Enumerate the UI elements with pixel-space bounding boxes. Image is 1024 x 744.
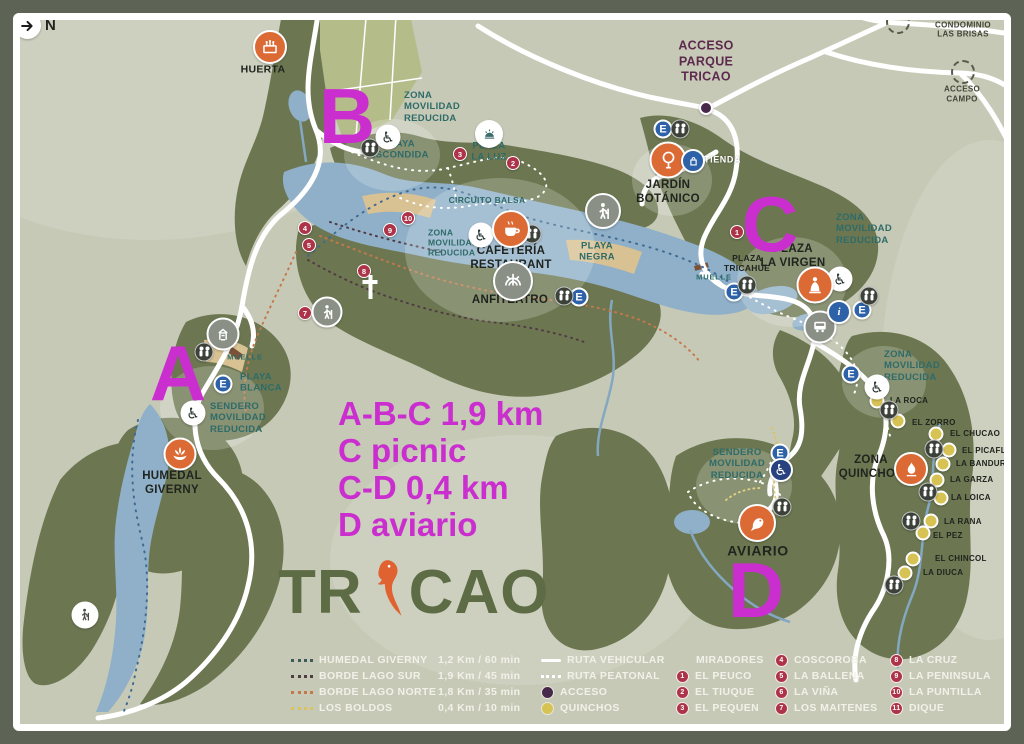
legend-routes: RUTA VEHICULAR RUTA PEATONAL ACCESO QUIN… xyxy=(541,652,665,716)
mirador-marker: 9 xyxy=(383,223,397,237)
restroom-icon xyxy=(925,440,944,459)
mirador-marker: 4 xyxy=(298,221,312,235)
plaza-la-luz-dome-icon xyxy=(475,120,503,148)
route-label: ACCESO xyxy=(560,686,607,698)
amphitheater-icon xyxy=(493,261,533,301)
mirador-number: 10 xyxy=(890,686,903,699)
trail-swatch xyxy=(291,675,313,678)
map-label: LA LOICA xyxy=(951,493,991,503)
route-label: RUTA VEHICULAR xyxy=(567,654,665,666)
quinchos-fire-icon xyxy=(894,452,928,486)
annotation-letter: A xyxy=(150,334,206,412)
mirador-number: 7 xyxy=(775,702,788,715)
map-label: LA DIUCA xyxy=(923,568,963,578)
pedestrian-route-swatch xyxy=(541,675,561,678)
map-label: ACCESO CONDOMINIO LAS BRISAS xyxy=(933,13,994,39)
campo-access-gate-icon xyxy=(951,60,975,84)
mirador-label: EL PEUCO xyxy=(695,670,752,682)
north-label: N xyxy=(45,17,56,34)
cafeteria-coffee-icon xyxy=(492,210,530,248)
giverny-lotus-icon xyxy=(164,438,197,471)
map-label: CIRCUITO BALSA xyxy=(449,195,526,205)
map-label: ACCESO CAMPO xyxy=(944,84,980,103)
mirador-label: LA VIÑA xyxy=(794,686,838,698)
trail-distance: 1,9 Km / 45 min xyxy=(438,670,520,682)
mirador-number: 5 xyxy=(775,670,788,683)
legend-mirador-row: 4 COSCOROBA xyxy=(775,652,878,668)
mirador-number: 4 xyxy=(775,654,788,667)
hiker-icon xyxy=(585,193,621,229)
mirador-number: 3 xyxy=(676,702,689,715)
annotation-note-line: D aviario xyxy=(338,506,543,543)
legend-mirador-row: 7 LOS MAITENES xyxy=(775,700,878,716)
restroom-icon xyxy=(738,276,757,295)
annotation-letter: D xyxy=(728,551,784,629)
mirador-marker: 10 xyxy=(401,211,415,225)
restroom-icon xyxy=(671,120,690,139)
parking-marker: E xyxy=(214,375,233,394)
park-access-dot xyxy=(699,101,713,115)
legend-trails: HUMEDAL GIVERNY 1,2 Km / 60 min BORDE LA… xyxy=(291,652,520,716)
mirador-label: LA PUNTILLA xyxy=(909,686,982,698)
aviary-bird-icon xyxy=(738,504,776,542)
access-swatch xyxy=(541,686,554,699)
mirador-number: 6 xyxy=(775,686,788,699)
mirador-label: EL PEQUEN xyxy=(695,702,759,714)
map-label: MUELLE xyxy=(696,273,732,282)
tienda-shop-icon xyxy=(681,149,705,173)
legend-miradores-col2: 4 COSCOROBA 5 LA BALLENA 6 LA VIÑA 7 LOS… xyxy=(775,652,878,716)
lookout-tower-icon xyxy=(207,318,240,351)
map-label: MUELLE xyxy=(227,353,263,362)
map-label: HUERTA xyxy=(241,64,286,77)
quincho-marker xyxy=(916,526,931,541)
mirador-label: COSCOROBA xyxy=(794,654,867,666)
mirador-label: LA BALLENA xyxy=(794,670,865,682)
trail-swatch xyxy=(291,691,313,694)
legend-trail-row: HUMEDAL GIVERNY 1,2 Km / 60 min xyxy=(291,652,520,668)
legend-route-row: QUINCHOS xyxy=(541,700,665,716)
wheelchair-icon: ♿ xyxy=(769,458,793,482)
map-label: ACCESO PARQUE TRICAO xyxy=(678,39,733,86)
legend-mirador-row: 5 LA BALLENA xyxy=(775,668,878,684)
quincho-swatch xyxy=(541,702,554,715)
annotation-notes: A-B-C 1,9 kmC picnicC-D 0,4 kmD aviario xyxy=(338,395,543,543)
vehicular-route-swatch xyxy=(541,659,561,662)
map-label: EL CHINCOL xyxy=(935,554,987,564)
map-label: PLAYA NEGRA xyxy=(579,241,615,264)
information-icon: i xyxy=(827,300,851,324)
legend-route-row: ACCESO xyxy=(541,684,665,700)
map-label: EL PICAFLOR xyxy=(962,446,1011,456)
map-label: SENDERO MOVILIDAD REDUCIDA xyxy=(210,401,266,435)
annotation-note-line: A-B-C 1,9 km xyxy=(338,395,543,432)
map-label: HUMEDAL GIVERNY xyxy=(142,470,202,498)
annotation-letter: B xyxy=(319,77,375,155)
restroom-icon xyxy=(902,512,921,531)
mirador-label: LOS MAITENES xyxy=(794,702,878,714)
map-label: LA RANA xyxy=(944,517,982,527)
map-label: EL PEZ xyxy=(933,531,963,541)
mirador-label: DIQUE xyxy=(909,702,944,714)
quincho-marker xyxy=(906,552,921,567)
annotation-letter: C xyxy=(742,185,798,263)
map-label: LA GARZA xyxy=(950,475,993,485)
legend-route-row: RUTA PEATONAL xyxy=(541,668,665,684)
legend-mirador-row: 8 LA CRUZ xyxy=(890,652,991,668)
quincho-marker xyxy=(942,443,957,458)
restroom-icon xyxy=(919,483,938,502)
legend-mirador-row: 6 LA VIÑA xyxy=(775,684,878,700)
legend-route-row: RUTA VEHICULAR xyxy=(541,652,665,668)
mirador-number: 9 xyxy=(890,670,903,683)
mirador-label: LA PENINSULA xyxy=(909,670,991,682)
north-arrow-icon xyxy=(14,13,41,39)
mirador-label: LA CRUZ xyxy=(909,654,958,666)
logo-text-right: CAO xyxy=(409,567,550,620)
legend-mirador-row: 11 DIQUE xyxy=(890,700,991,716)
trail-name: BORDE LAGO NORTE xyxy=(319,686,432,698)
quincho-marker xyxy=(936,457,951,472)
trail-swatch xyxy=(291,659,313,662)
mirador-marker: 2 xyxy=(506,156,520,170)
map-label: SENDERO MOVILIDAD REDUCIDA xyxy=(709,447,765,481)
annotation-note-line: C picnic xyxy=(338,432,543,469)
legend-mirador-row: 2 EL TIUQUE xyxy=(676,684,764,700)
map-label: ZONA MOVILIDAD REDUCIDA xyxy=(404,90,460,124)
mirador-marker: 3 xyxy=(453,147,467,161)
legend-trail-row: BORDE LAGO NORTE 1,8 Km / 35 min xyxy=(291,684,520,700)
trail-name: LOS BOLDOS xyxy=(319,702,432,714)
mirador-marker: 7 xyxy=(298,306,312,320)
restroom-icon xyxy=(880,401,899,420)
restroom-icon xyxy=(860,287,879,306)
compass: N xyxy=(14,13,56,39)
trail-distance: 1,8 Km / 35 min xyxy=(438,686,520,698)
miradores-title: MIRADORES xyxy=(696,652,764,668)
route-label: QUINCHOS xyxy=(560,702,620,714)
wheelchair-icon: ♿ xyxy=(376,125,401,150)
legend-trail-row: BORDE LAGO SUR 1,9 Km / 45 min xyxy=(291,668,520,684)
condominio-access-gate-icon xyxy=(886,13,910,34)
map-label: LA BANDURRIA xyxy=(956,459,1011,469)
walker-icon xyxy=(72,602,99,629)
annotation-note-line: C-D 0,4 km xyxy=(338,469,543,506)
trail-name: BORDE LAGO SUR xyxy=(319,670,432,682)
legend-trail-row: LOS BOLDOS 0,4 Km / 10 min xyxy=(291,700,520,716)
park-map: N HUERTAZONA MOVILIDAD REDUCIDAPLAYA ESC… xyxy=(0,0,1024,744)
trail-swatch xyxy=(291,707,313,710)
la-cruz-cross-icon xyxy=(363,275,378,299)
tricao-logo: TR CAO xyxy=(278,558,549,620)
overlay-layer: N HUERTAZONA MOVILIDAD REDUCIDAPLAYA ESC… xyxy=(13,13,1011,731)
parking-marker: E xyxy=(842,365,861,384)
restroom-icon xyxy=(773,498,792,517)
map-frame: N HUERTAZONA MOVILIDAD REDUCIDAPLAYA ESC… xyxy=(13,13,1011,731)
mirador-label: EL TIUQUE xyxy=(695,686,754,698)
wheelchair-icon: ♿ xyxy=(865,375,890,400)
mirador-number: 1 xyxy=(676,670,689,683)
logo-text-left: TR xyxy=(278,567,363,620)
trail-distance: 0,4 Km / 10 min xyxy=(438,702,520,714)
map-label: ZONA MOVILIDAD REDUCIDA xyxy=(884,349,940,383)
legend-mirador-row: 3 EL PEQUEN xyxy=(676,700,764,716)
trail-name: HUMEDAL GIVERNY xyxy=(319,654,432,666)
mirador-marker: 5 xyxy=(302,238,316,252)
mirador-number: 8 xyxy=(890,654,903,667)
map-label: TIENDA xyxy=(704,155,741,166)
wheelchair-icon: ♿ xyxy=(469,223,494,248)
legend-mirador-row: 10 LA PUNTILLA xyxy=(890,684,991,700)
map-label: EL CHUCAO xyxy=(950,429,1000,439)
hiker-icon xyxy=(312,297,343,328)
trail-distance: 1,2 Km / 60 min xyxy=(438,654,520,666)
mirador-number: 2 xyxy=(676,686,689,699)
map-label: JARDÍN BOTÁNICO xyxy=(636,179,700,207)
mirador-number: 11 xyxy=(890,702,903,715)
restroom-icon xyxy=(555,287,574,306)
restroom-icon xyxy=(885,576,904,595)
legend-miradores-col3: 8 LA CRUZ 9 LA PENINSULA 10 LA PUNTILLA … xyxy=(890,652,991,716)
map-label: PLAYA BLANCA xyxy=(240,372,282,395)
virgin-statue-icon xyxy=(797,267,834,304)
map-label: ZONA MOVILIDAD REDUCIDA xyxy=(836,212,892,246)
legend-miradores-col1: MIRADORES 1 EL PEUCO 2 EL TIUQUE 3 EL PE… xyxy=(676,652,764,716)
parrot-icon xyxy=(365,558,407,620)
legend-mirador-row: 9 LA PENINSULA xyxy=(890,668,991,684)
route-label: RUTA PEATONAL xyxy=(567,670,660,682)
huerta-garden-icon xyxy=(253,30,287,64)
legend-mirador-row: 1 EL PEUCO xyxy=(676,668,764,684)
